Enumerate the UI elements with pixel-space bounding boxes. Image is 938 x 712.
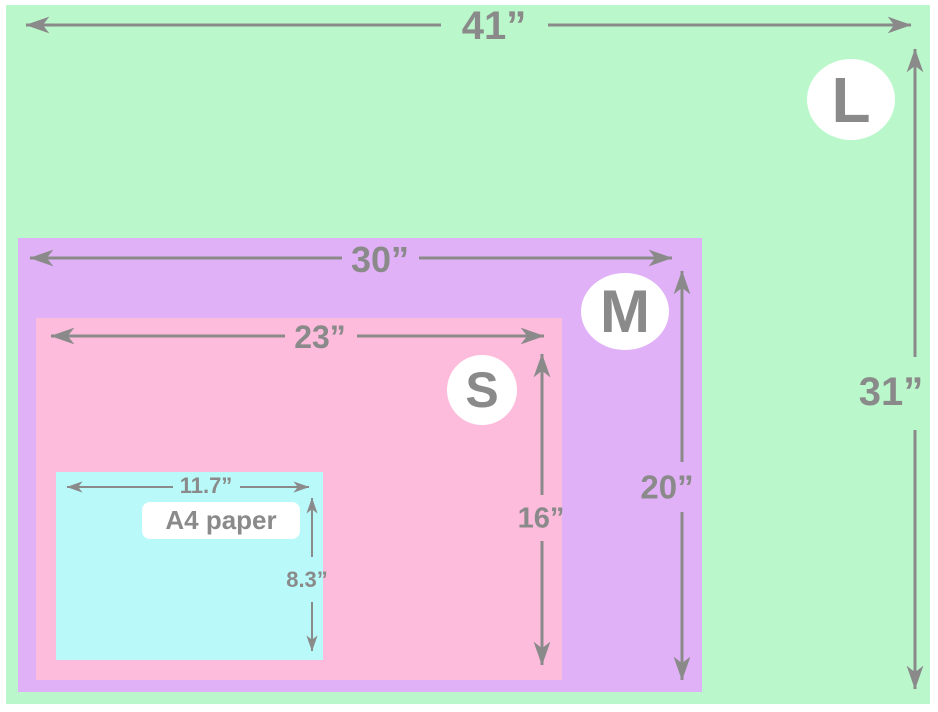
height-label-m: 20”	[640, 471, 693, 504]
size-badge-s: S	[447, 355, 517, 425]
width-label-s: 23”	[294, 321, 346, 353]
width-label-l: 41”	[462, 6, 527, 46]
size-badge-m: M	[581, 273, 669, 350]
width-label-m: 30”	[351, 242, 409, 278]
height-label-s: 16”	[518, 505, 565, 534]
height-label-a4: 8.3”	[286, 569, 328, 591]
size-badge-l: L	[807, 59, 895, 140]
width-label-a4: 11.7”	[180, 475, 233, 497]
a4-paper-label: A4 paper	[142, 502, 300, 539]
height-label-l: 31”	[859, 372, 924, 412]
dimension-lines	[0, 0, 938, 712]
size-comparison-diagram: 41” 31” 30” 20” 23” 16” 11.7” 8.3” A4 pa…	[0, 0, 938, 712]
